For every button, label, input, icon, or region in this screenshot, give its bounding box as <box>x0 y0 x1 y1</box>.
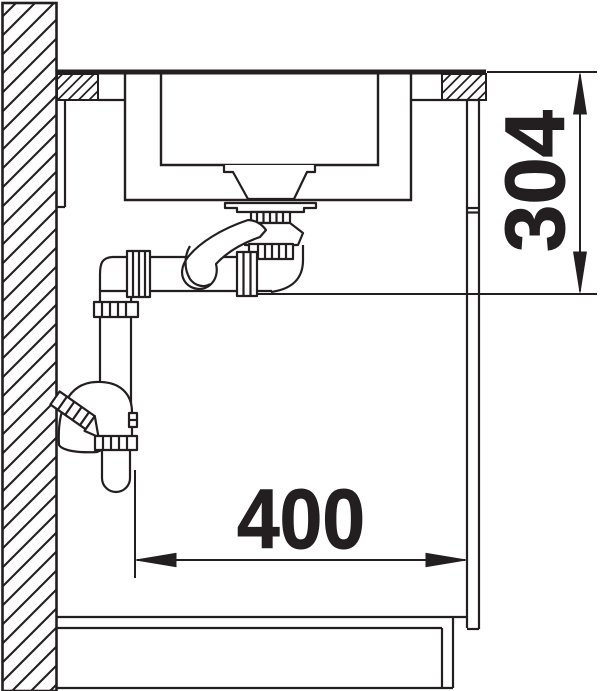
union-nut-left <box>127 251 150 297</box>
dimension-400: 400 <box>135 470 466 578</box>
cabinet-left-panel <box>57 100 65 207</box>
technical-drawing-canvas: 304 400 <box>0 0 600 691</box>
countertop-cut-right <box>442 74 486 100</box>
arrow-up-icon <box>574 74 587 115</box>
strainer-lower-flange <box>225 203 316 212</box>
drain-assembly <box>49 165 316 492</box>
arrow-left-icon <box>136 553 176 566</box>
sink-installation-diagram: 304 400 <box>0 0 600 691</box>
pipe-clip <box>129 413 137 427</box>
countertop <box>57 72 486 100</box>
dimension-304-label: 304 <box>488 110 582 252</box>
union-nut-vertical <box>94 302 138 317</box>
arrow-right-icon <box>426 553 466 566</box>
strainer-flange <box>224 165 315 199</box>
cabinet-bottom-shelf <box>57 617 467 628</box>
dimension-304: 304 <box>253 72 597 294</box>
basin-inner-shell <box>161 74 378 165</box>
left-elbow-outer <box>100 257 112 304</box>
dimension-400-label: 400 <box>237 472 365 566</box>
cabinet-right-wall <box>467 100 479 629</box>
arrow-down-icon <box>574 252 587 293</box>
trap-cup <box>102 450 130 492</box>
wall-section <box>3 3 57 691</box>
cabinet-plinth <box>442 617 453 688</box>
union-nut-mid <box>237 252 257 296</box>
trap-collar-nut <box>95 436 137 450</box>
countertop-cut-left <box>57 74 98 100</box>
